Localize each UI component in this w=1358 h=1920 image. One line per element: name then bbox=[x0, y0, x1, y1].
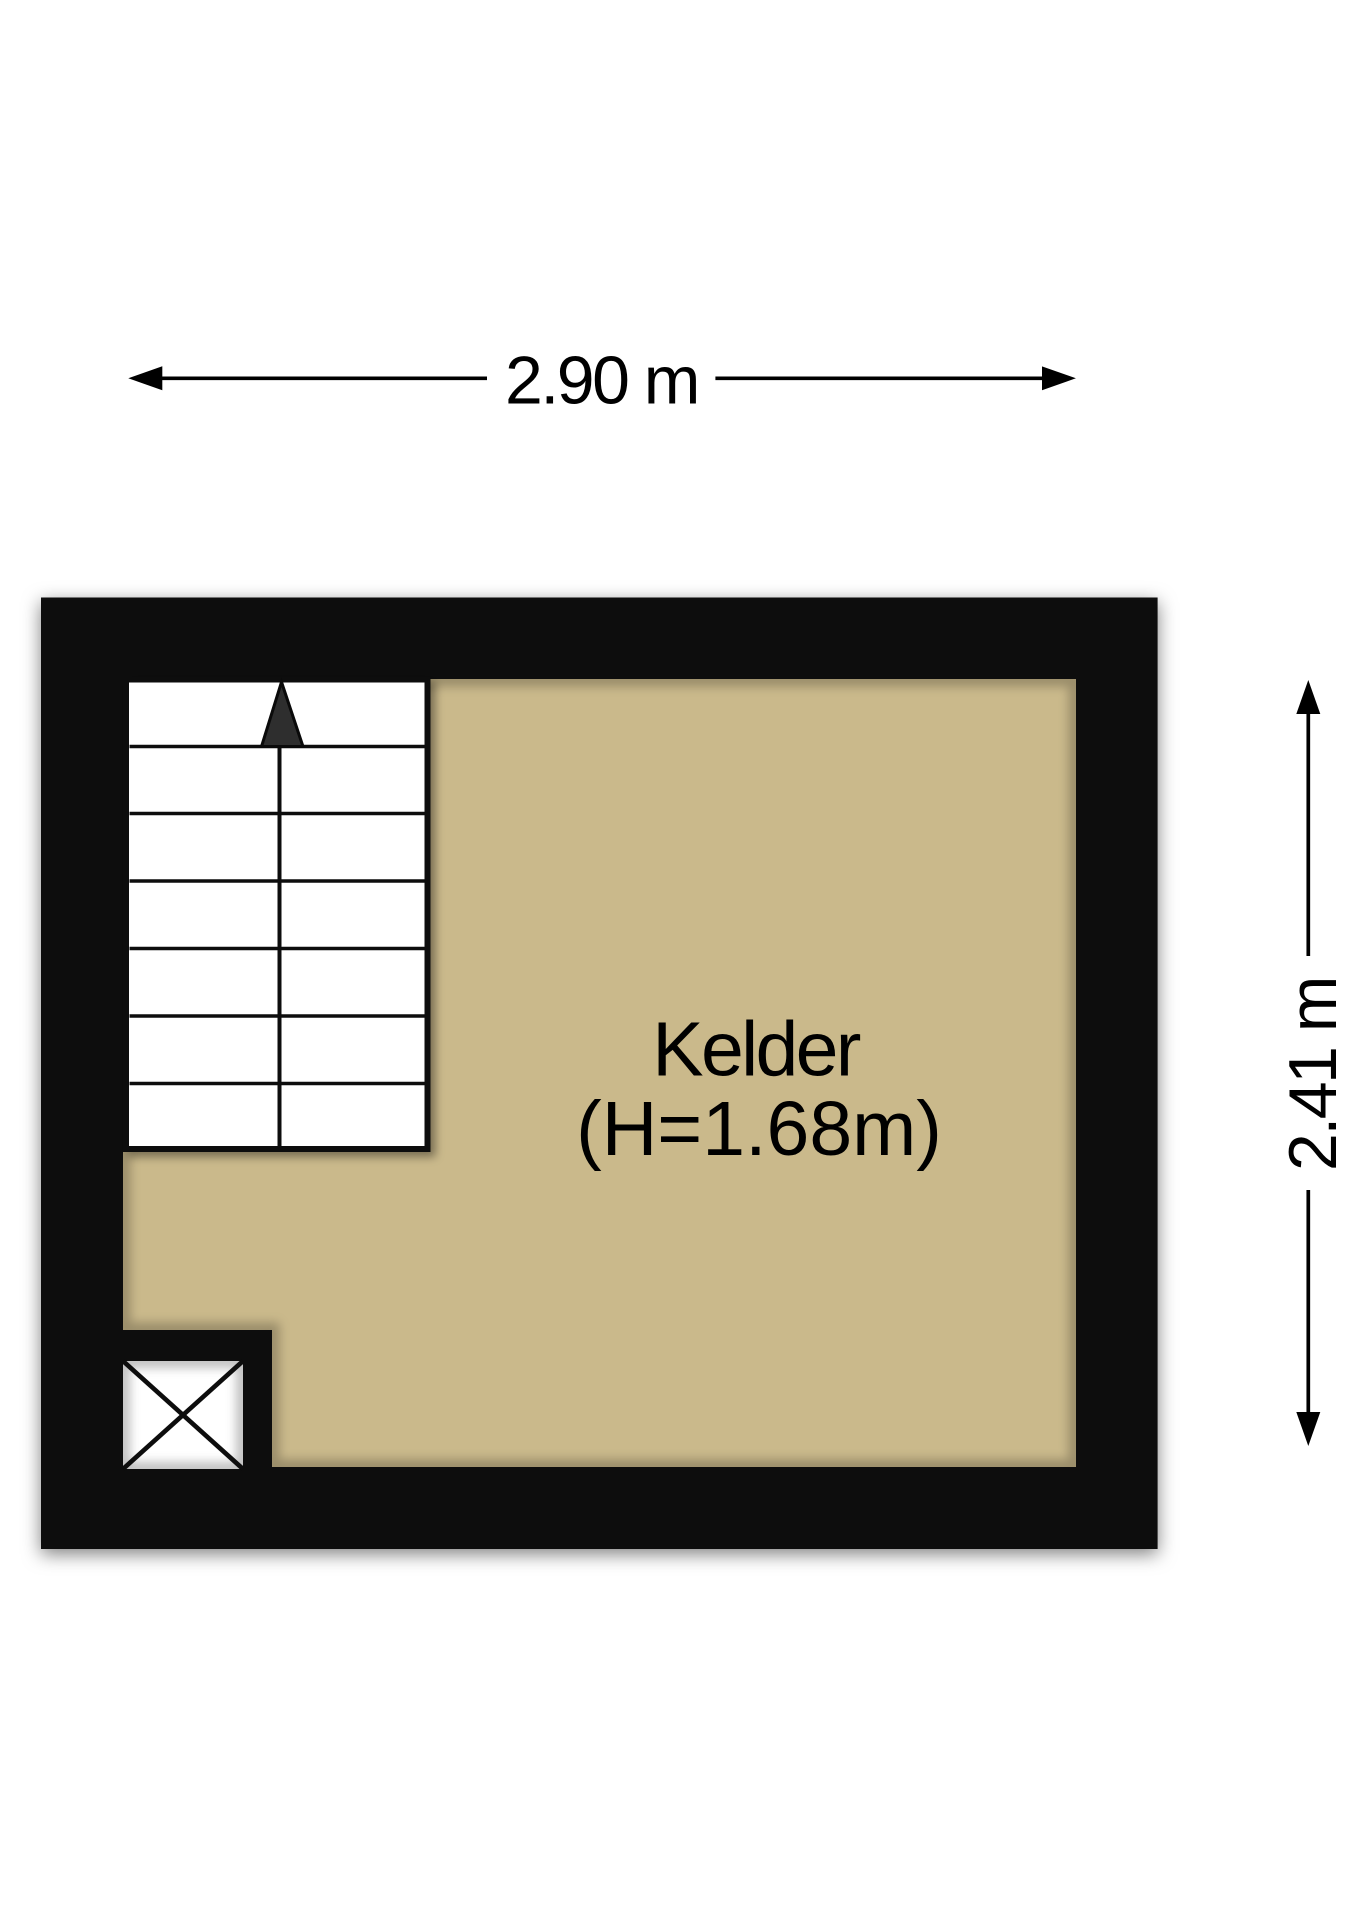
svg-text:2.90 m: 2.90 m bbox=[505, 343, 698, 419]
svg-text:2.41 m: 2.41 m bbox=[1275, 978, 1351, 1171]
svg-text:Kelder: Kelder bbox=[652, 1006, 860, 1092]
svg-text:(H=1.68m): (H=1.68m) bbox=[576, 1086, 942, 1172]
